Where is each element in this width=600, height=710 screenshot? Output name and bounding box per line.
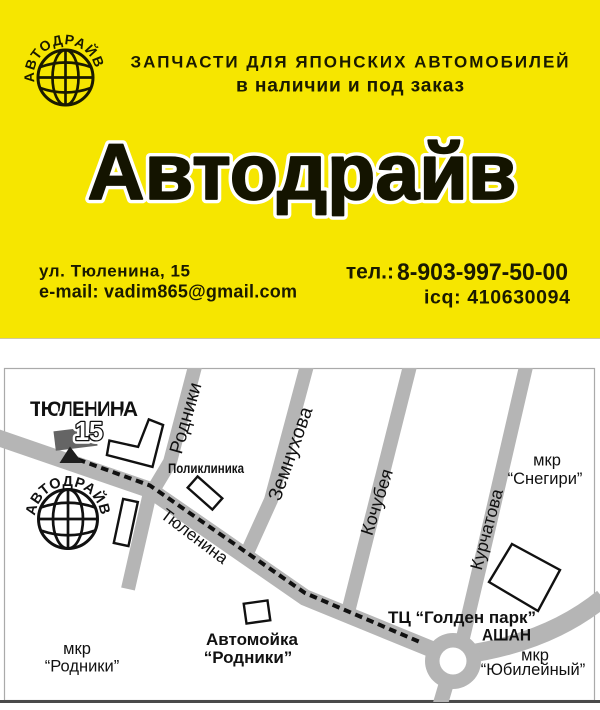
svg-text:мкр: мкр: [63, 640, 91, 658]
svg-text:“Родники”: “Родники”: [204, 648, 293, 667]
svg-text:АШАН: АШАН: [482, 626, 531, 645]
svg-text:“Родники”: “Родники”: [45, 658, 119, 676]
svg-text:Поликлиника: Поликлиника: [168, 460, 244, 476]
svg-text:“Снегири”: “Снегири”: [508, 470, 583, 488]
svg-text:15: 15: [75, 418, 103, 446]
svg-text:“Юбилейный”: “Юбилейный”: [481, 661, 586, 679]
svg-text:ТЦ “Голден парк”: ТЦ “Голден парк”: [388, 608, 536, 627]
svg-text:мкр: мкр: [533, 452, 561, 470]
svg-text:Автомойка: Автомойка: [206, 630, 298, 649]
